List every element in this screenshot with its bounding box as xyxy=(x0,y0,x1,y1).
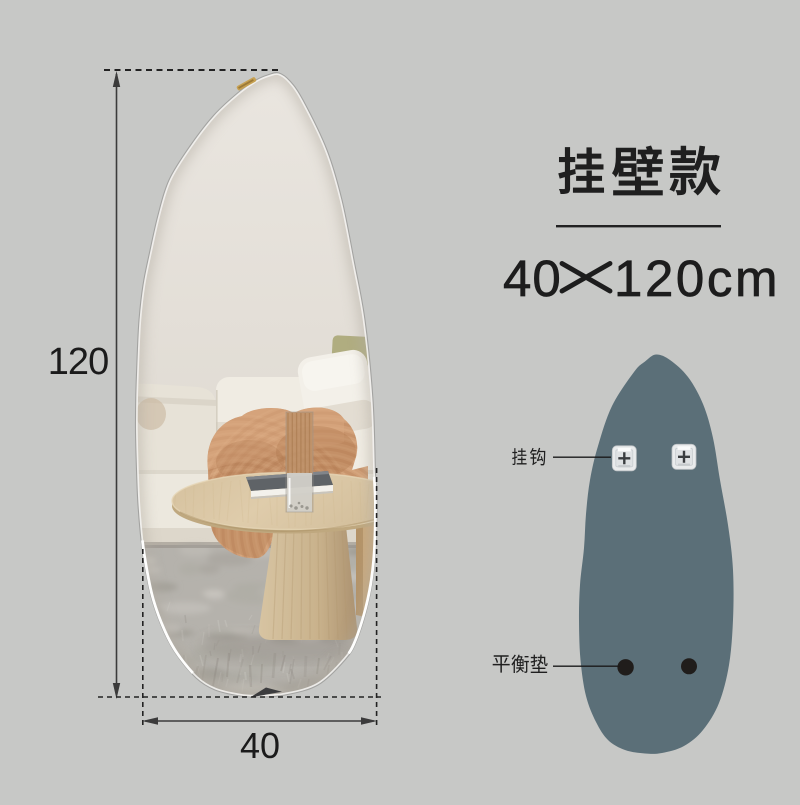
svg-text:40: 40 xyxy=(503,250,562,307)
svg-text:120: 120 xyxy=(48,341,108,383)
svg-text:40: 40 xyxy=(240,725,280,766)
svg-text:120cm: 120cm xyxy=(614,250,780,307)
